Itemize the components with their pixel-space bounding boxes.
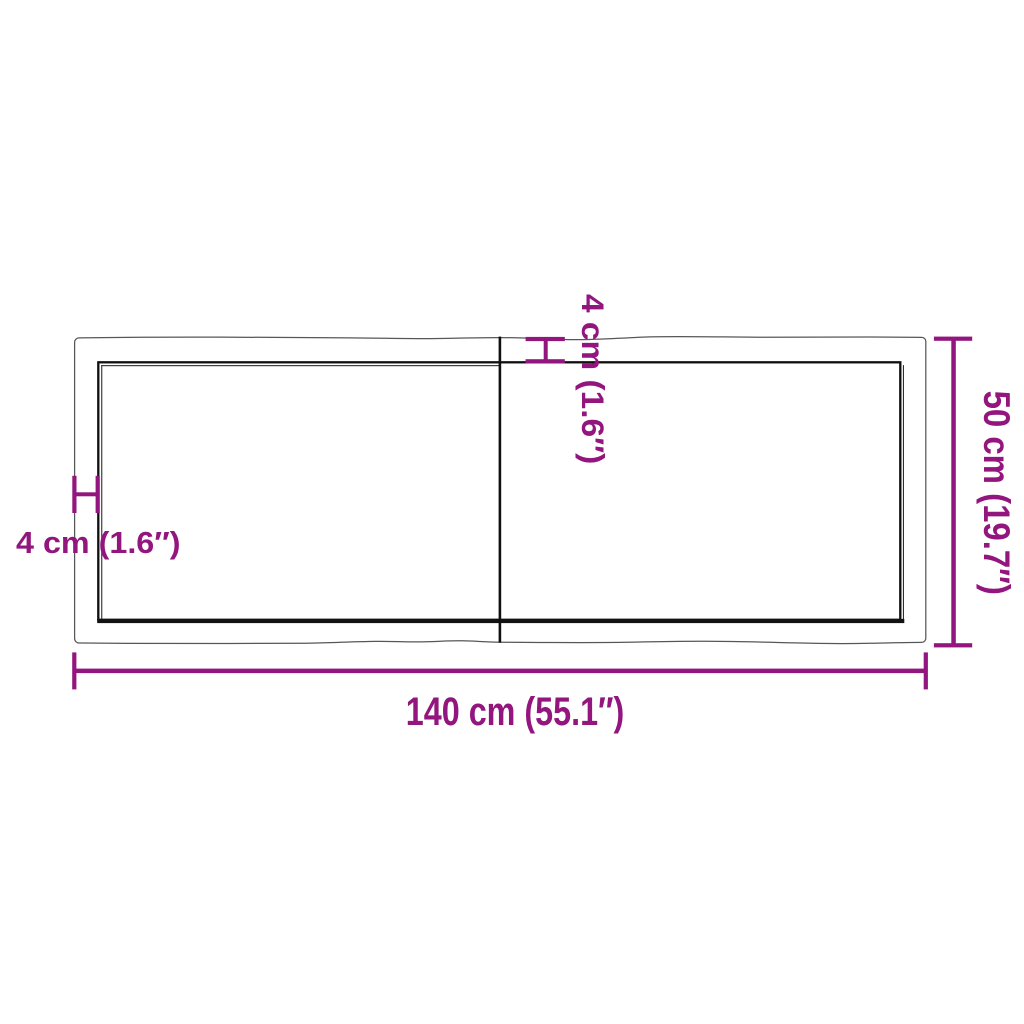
svg-text:4 cm (1.6″): 4 cm (1.6″)	[16, 525, 181, 560]
svg-text:4 cm (1.6″): 4 cm (1.6″)	[575, 294, 611, 464]
svg-text:140 cm (55.1″): 140 cm (55.1″)	[406, 690, 625, 734]
svg-text:50 cm (19.7″): 50 cm (19.7″)	[976, 391, 1017, 595]
